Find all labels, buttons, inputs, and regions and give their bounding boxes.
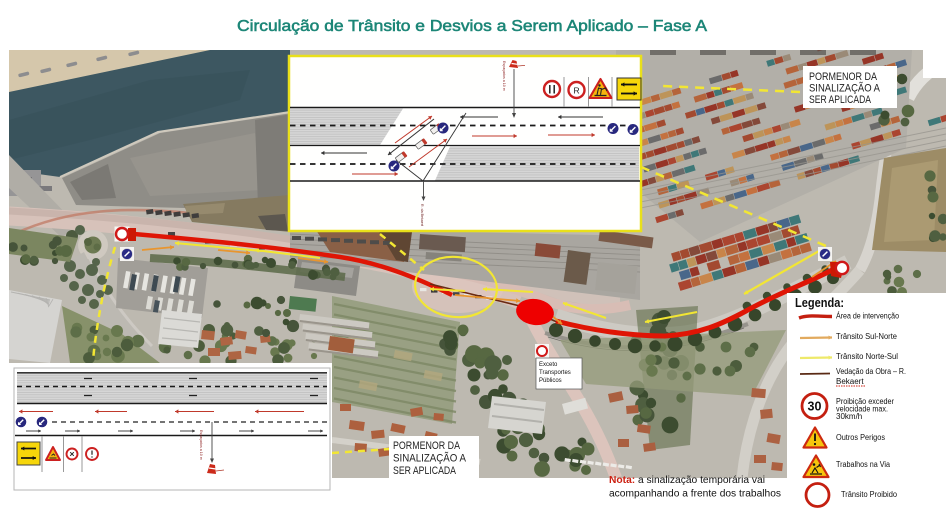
svg-text:Trânsito Sul-Norte: Trânsito Sul-Norte	[836, 332, 898, 341]
svg-text:30: 30	[808, 400, 822, 414]
svg-text:R: R	[574, 86, 580, 96]
svg-text:SER APLICADA: SER APLICADA	[393, 465, 457, 477]
svg-text:Transportes: Transportes	[539, 370, 571, 376]
svg-text:Área de intervenção: Área de intervenção	[836, 312, 899, 321]
svg-text:Vedação da Obra – R.: Vedação da Obra – R.	[836, 367, 906, 376]
svg-text:Trânsito Proibido: Trânsito Proibido	[841, 490, 898, 499]
svg-text:30km/h: 30km/h	[836, 412, 862, 421]
svg-text:Bekaert: Bekaert	[836, 377, 864, 386]
svg-text:Circulação de Trânsito e Desvi: Circulação de Trânsito e Desvios a Serem…	[237, 18, 708, 35]
svg-text:PORMENOR DA: PORMENOR DA	[393, 440, 461, 452]
svg-text:Nota: a sinalização temporária: Nota: a sinalização temporária vai	[609, 475, 765, 486]
svg-text:PORMENOR DA: PORMENOR DA	[809, 71, 878, 83]
svg-text:Espaçados a 10 m: Espaçados a 10 m	[199, 430, 203, 460]
svg-text:R. da Bekaert: R. da Bekaert	[420, 204, 424, 226]
svg-text:Exceto: Exceto	[539, 362, 558, 368]
svg-text:Trabalhos na Via: Trabalhos na Via	[836, 460, 890, 469]
svg-text:Públicos: Públicos	[539, 378, 562, 384]
svg-text:SINALIZAÇÃO A: SINALIZAÇÃO A	[809, 82, 881, 95]
svg-text:Espaçados a 10 m: Espaçados a 10 m	[502, 61, 506, 91]
svg-text:Outros Perigos: Outros Perigos	[836, 433, 885, 442]
svg-text:SER APLICADA: SER APLICADA	[809, 94, 872, 106]
svg-text:SINALIZAÇÃO A: SINALIZAÇÃO A	[393, 452, 467, 465]
svg-text:acompanhando a frente dos trab: acompanhando a frente dos trabalhos	[609, 489, 781, 500]
svg-text:Legenda:: Legenda:	[795, 296, 844, 310]
svg-text:Trânsito Norte-Sul: Trânsito Norte-Sul	[836, 352, 898, 361]
